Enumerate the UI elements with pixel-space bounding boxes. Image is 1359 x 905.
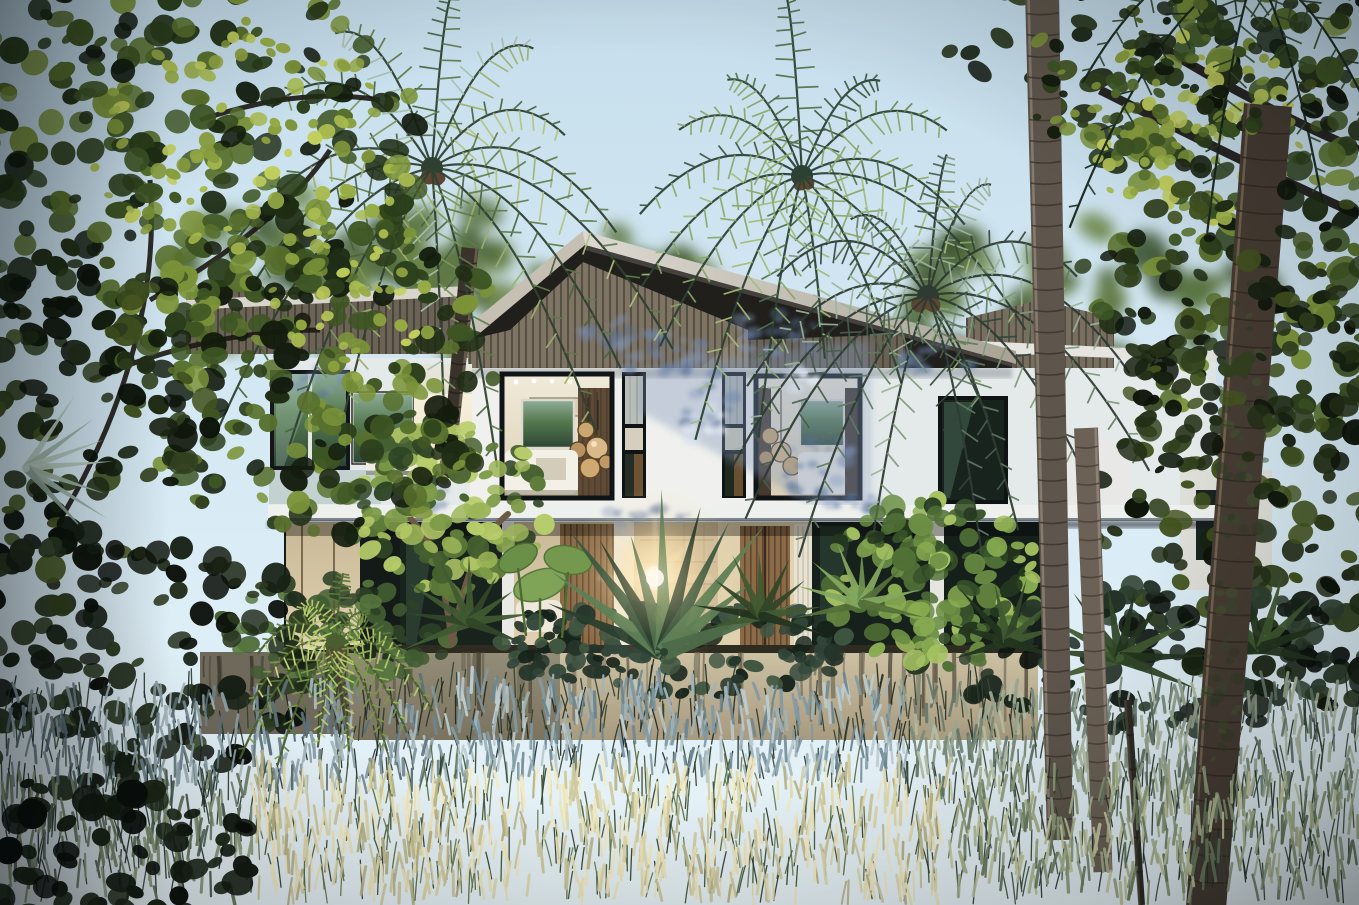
render-canvas: Dusk photorealistic rendering of a moder…	[0, 0, 1359, 905]
vignette	[0, 0, 1359, 905]
left-edge-shade	[0, 0, 170, 905]
villa-exterior-render: Dusk photorealistic rendering of a moder…	[0, 0, 1359, 905]
